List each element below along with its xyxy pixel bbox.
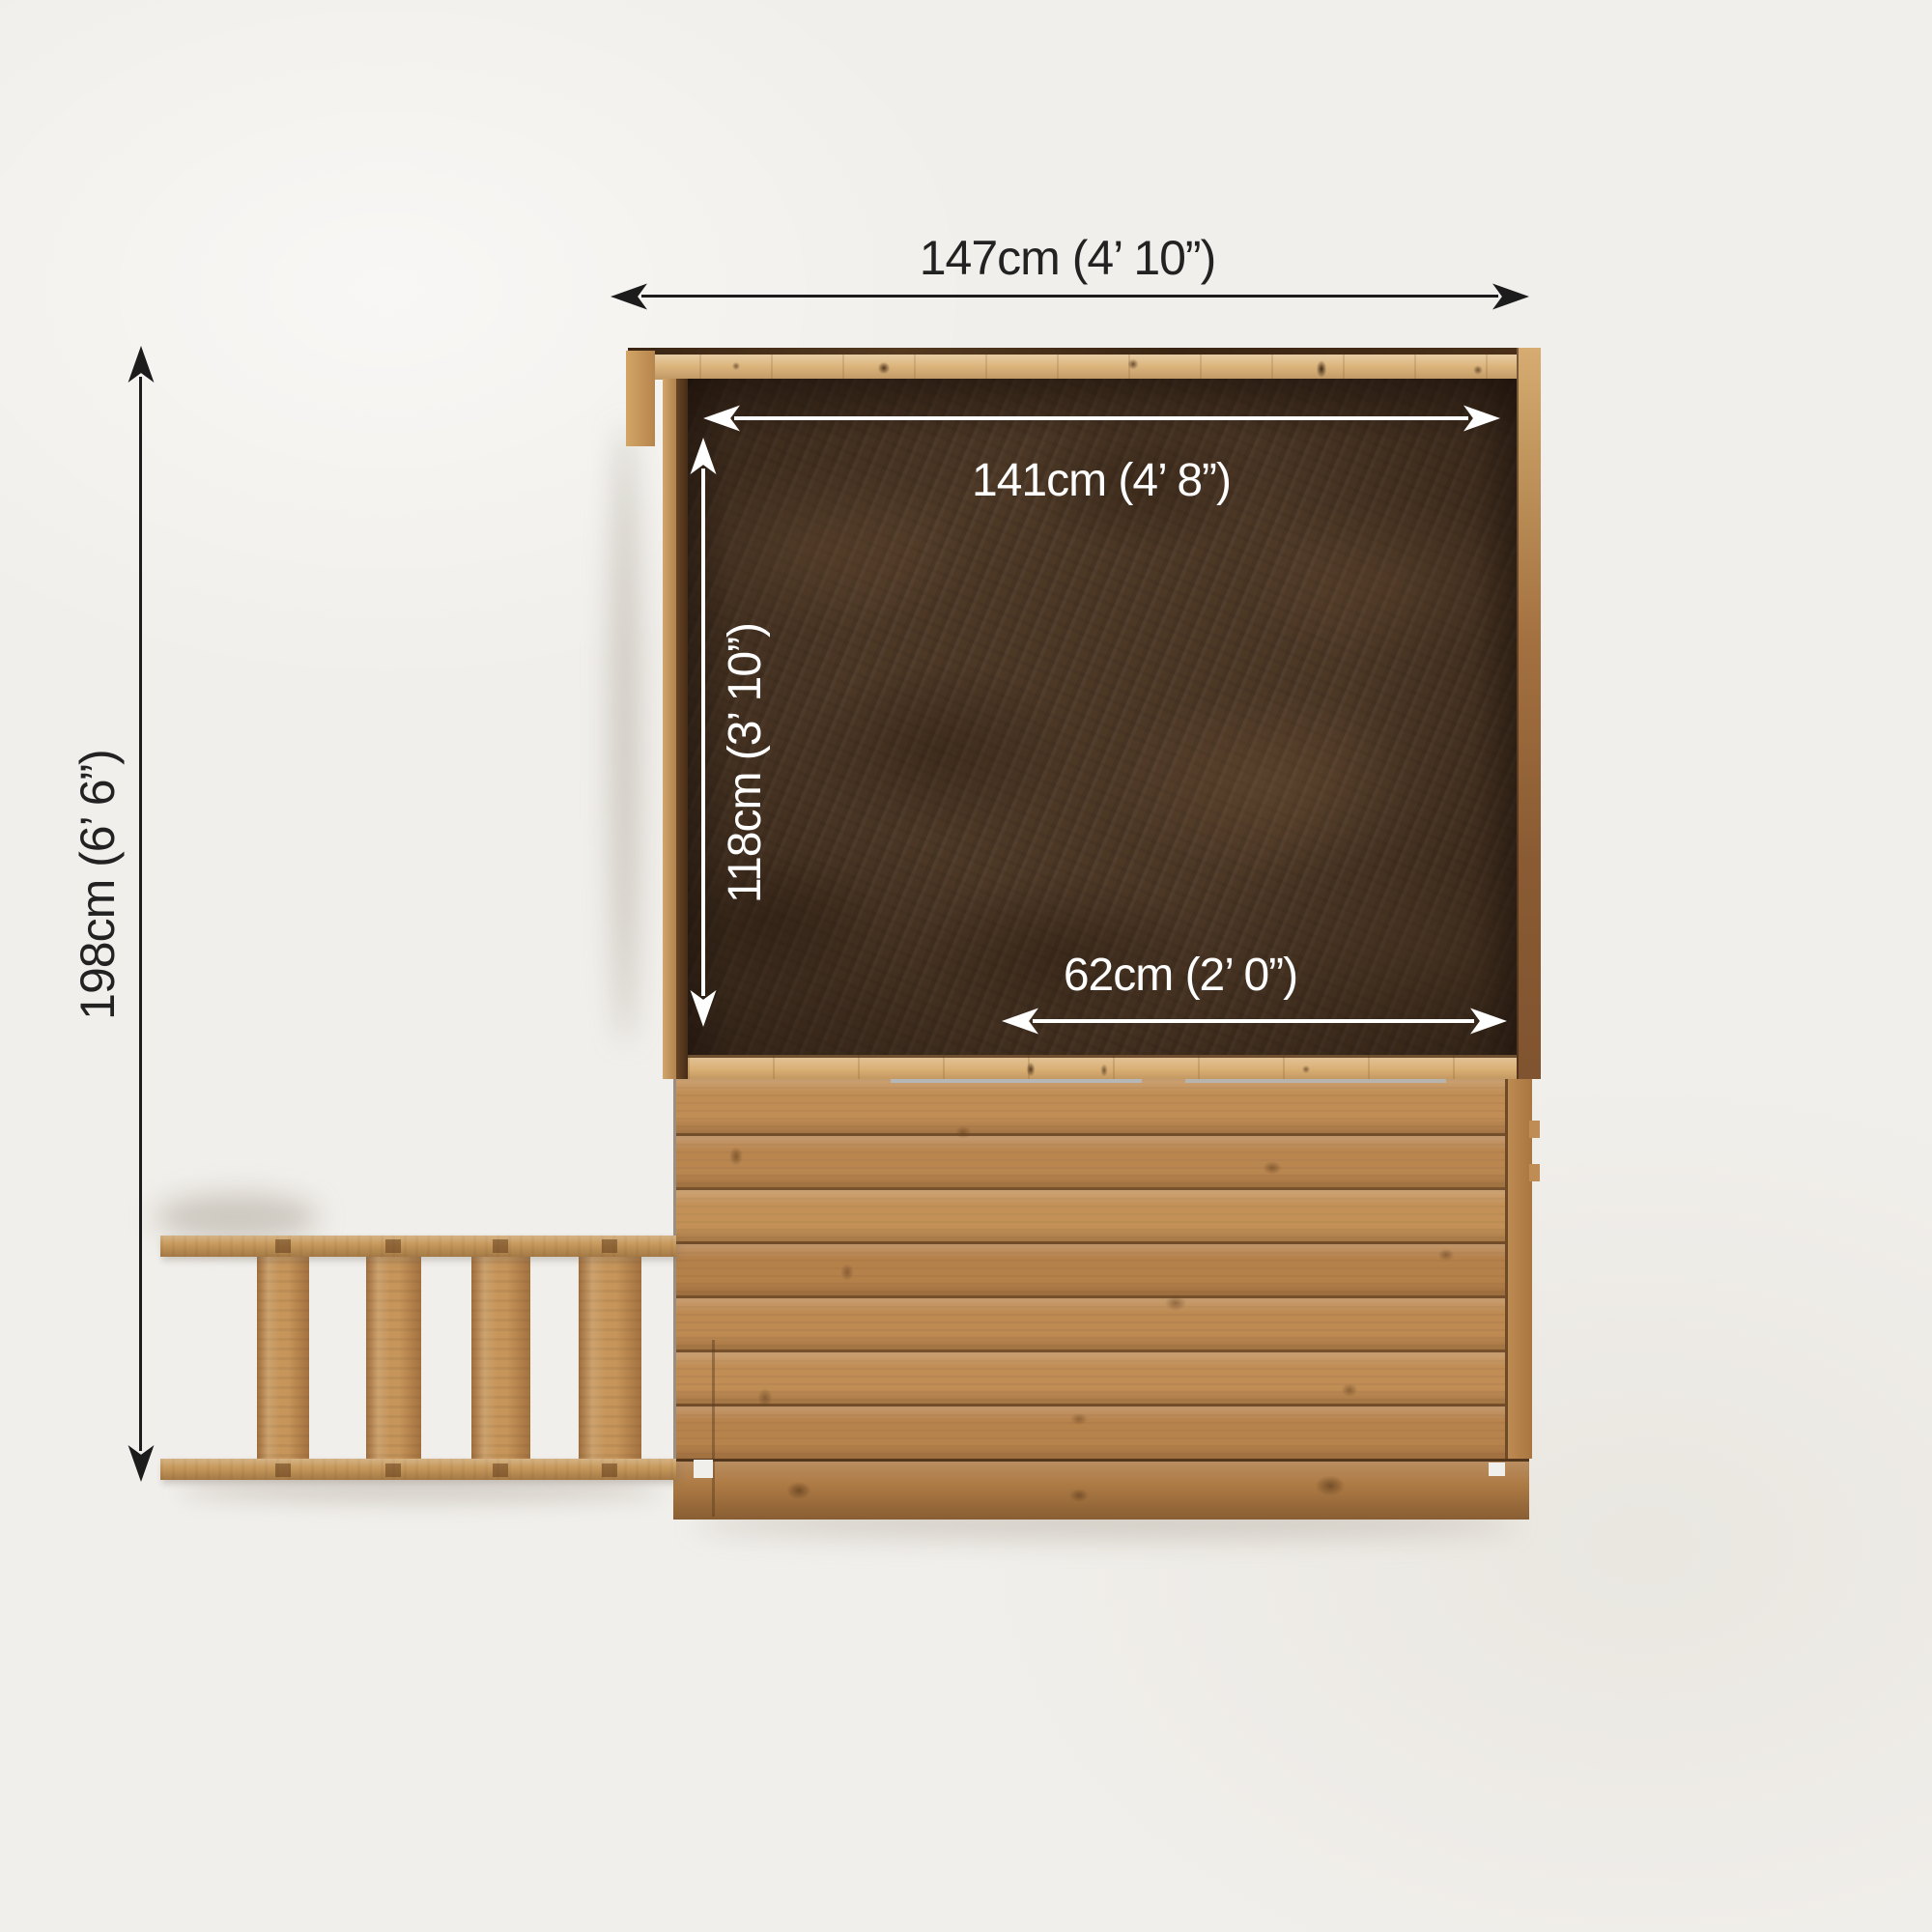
- dimension-label-inner-width: 141cm (4’ 8”): [811, 454, 1391, 507]
- inner-width-arrow-line: [734, 416, 1468, 420]
- corner-post: [626, 351, 655, 446]
- ladder-rung: [579, 1239, 641, 1476]
- left-wall-edge-highlight: [663, 379, 676, 1079]
- ladder-tenon: [275, 1463, 291, 1477]
- ladder-tenon: [602, 1463, 617, 1477]
- opening-width-arrow-line: [1033, 1019, 1474, 1023]
- veranda-deck: [673, 1079, 1529, 1517]
- deck-plank: [676, 1404, 1508, 1459]
- ladder-bottom-shadow: [179, 1480, 662, 1503]
- ladder-tenon: [275, 1239, 291, 1253]
- plan-view-canvas: 147cm (4’ 10”) 198cm (6’ 6”) 141cm (4’ 8…: [0, 0, 1932, 1932]
- deck-plank: [676, 1295, 1508, 1350]
- deck-notch: [1489, 1463, 1505, 1476]
- ladder-rung: [257, 1239, 309, 1476]
- inner-depth-arrow-line: [701, 469, 705, 996]
- edge-shadow: [611, 425, 639, 1043]
- deck-plank: [676, 1079, 1508, 1133]
- deck-board-seam: [712, 1340, 715, 1517]
- dimension-label-overall-width: 147cm (4’ 10”): [778, 230, 1357, 286]
- deck-joint-tab: [1529, 1121, 1540, 1138]
- dimension-label-overall-depth: 198cm (6’ 6”): [71, 692, 125, 1078]
- front-wall-plate: [628, 355, 1539, 380]
- deck-joint-strip: [891, 1079, 1142, 1083]
- right-wall-edge: [1517, 348, 1541, 1079]
- left-wall-edge: [676, 379, 688, 1079]
- rear-wall-plate: [688, 1055, 1517, 1082]
- ladder-rung: [471, 1239, 530, 1476]
- deck-plank: [676, 1350, 1508, 1404]
- deck-notch: [694, 1460, 713, 1478]
- dimension-label-inner-depth: 118cm (3’ 10”): [719, 570, 773, 956]
- deck-plank: [676, 1241, 1508, 1295]
- deck-planks: [673, 1079, 1508, 1459]
- ladder-tenon: [493, 1463, 508, 1477]
- ladder-rung: [366, 1239, 421, 1476]
- ladder-tenon: [385, 1239, 401, 1253]
- deck-right-rail: [1505, 1079, 1532, 1459]
- deck-joint-strip: [1185, 1079, 1446, 1083]
- ladder-tenon: [602, 1239, 617, 1253]
- deck-plank: [676, 1133, 1508, 1187]
- overall-depth-arrow-line: [139, 377, 142, 1451]
- deck-joint-tab: [1529, 1164, 1540, 1181]
- ladder-tenon: [385, 1463, 401, 1477]
- ladder-side-rail-top: [160, 1236, 676, 1257]
- deck-plank: [676, 1187, 1508, 1241]
- ladder-shadow: [155, 1194, 319, 1240]
- dimension-label-opening-width: 62cm (2’ 0”): [987, 949, 1374, 1002]
- overall-width-arrow-line: [641, 295, 1498, 298]
- deck-bottom-rail: [673, 1459, 1529, 1520]
- ladder-side-rail-bottom: [160, 1459, 676, 1480]
- ladder-tenon: [493, 1239, 508, 1253]
